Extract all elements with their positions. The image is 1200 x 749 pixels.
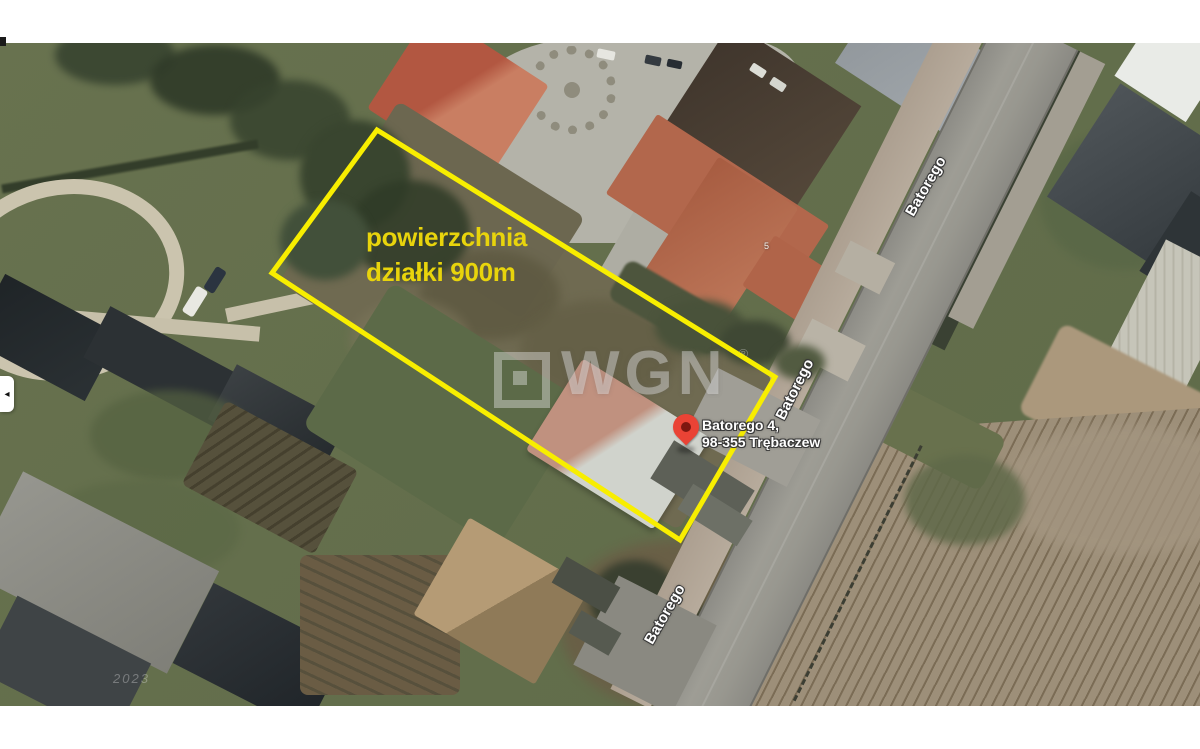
map-pin-icon[interactable] [672,413,700,453]
marker-address-label: Batorego 4, 98-355 Trębaczew [702,417,820,451]
marker-address-line1: Batorego 4, [702,417,820,434]
arrow-left-icon: ◂ [4,389,9,400]
top-white-margin [0,0,1200,43]
plot-area-annotation: powierzchnia działki 900m [366,220,527,290]
edge-control[interactable]: ◂ [0,376,14,412]
bottom-white-margin [0,706,1200,749]
marker-address-line2: 98-355 Trębaczew [702,434,820,451]
plot-outline-polygon [0,0,1200,749]
plot-area-line2: działki 900m [366,255,527,290]
satellite-map-canvas[interactable]: powierzchnia działki 900m WGN ® Batorego… [0,0,1200,749]
pin-shadow [677,446,695,453]
edge-dark-notch [0,37,6,46]
plot-area-line1: powierzchnia [366,220,527,255]
pin-hole [681,422,691,432]
map-screenshot: powierzchnia działki 900m WGN ® Batorego… [0,0,1200,749]
